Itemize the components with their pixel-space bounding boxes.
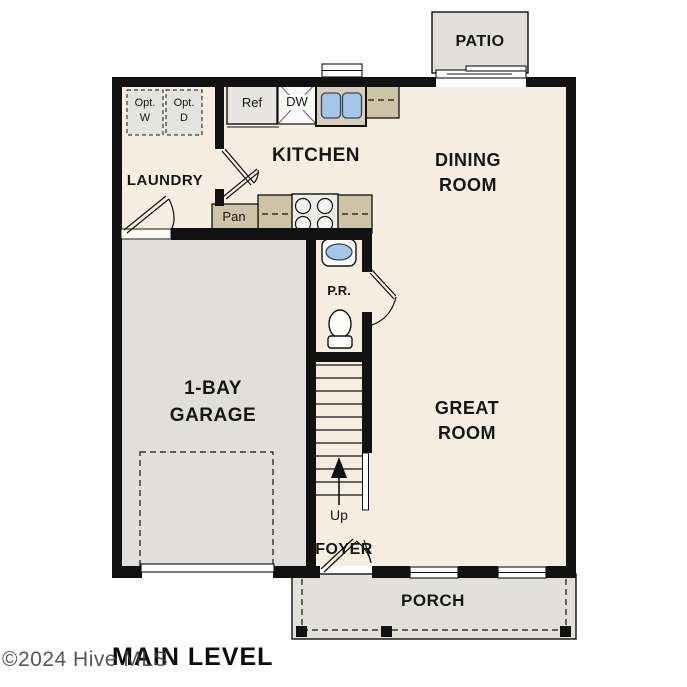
laundry-label: LAUNDRY [127,172,203,189]
garage-label: 1-BAYGARAGE [170,375,256,429]
great-room-label: GREATROOM [435,396,499,446]
stairs-up-label: Up [330,507,348,523]
kitchen-label: KITCHEN [272,145,360,167]
floor-plan-drawing [0,0,687,687]
stair-rail [363,453,369,510]
vanity-sink-icon [322,239,356,266]
foyer-label: FOYER [315,541,373,559]
dining-room-label: DININGROOM [435,148,501,198]
great-room-window-2 [498,567,546,578]
toilet-icon [328,310,352,348]
dishwasher-label: DW [285,95,309,110]
kitchen-window [322,64,362,77]
copyright-watermark: ©2024 Hive MLS [2,648,168,672]
powder-room-label: P.R. [327,284,351,299]
patio-label: PATIO [455,33,504,51]
refrigerator-label: Ref [242,96,262,111]
opt-washer-label: Opt.W [135,96,156,126]
floor-plan: PATIO KITCHEN DININGROOM LAUNDRY GREATRO… [0,0,687,687]
garage-door [141,564,274,572]
pantry-label: Pan [222,210,245,225]
great-room-window-1 [410,567,458,578]
opt-dryer-label: Opt.D [174,96,195,126]
porch-label: PORCH [401,591,465,611]
kitchen-sink-icon [316,84,366,126]
